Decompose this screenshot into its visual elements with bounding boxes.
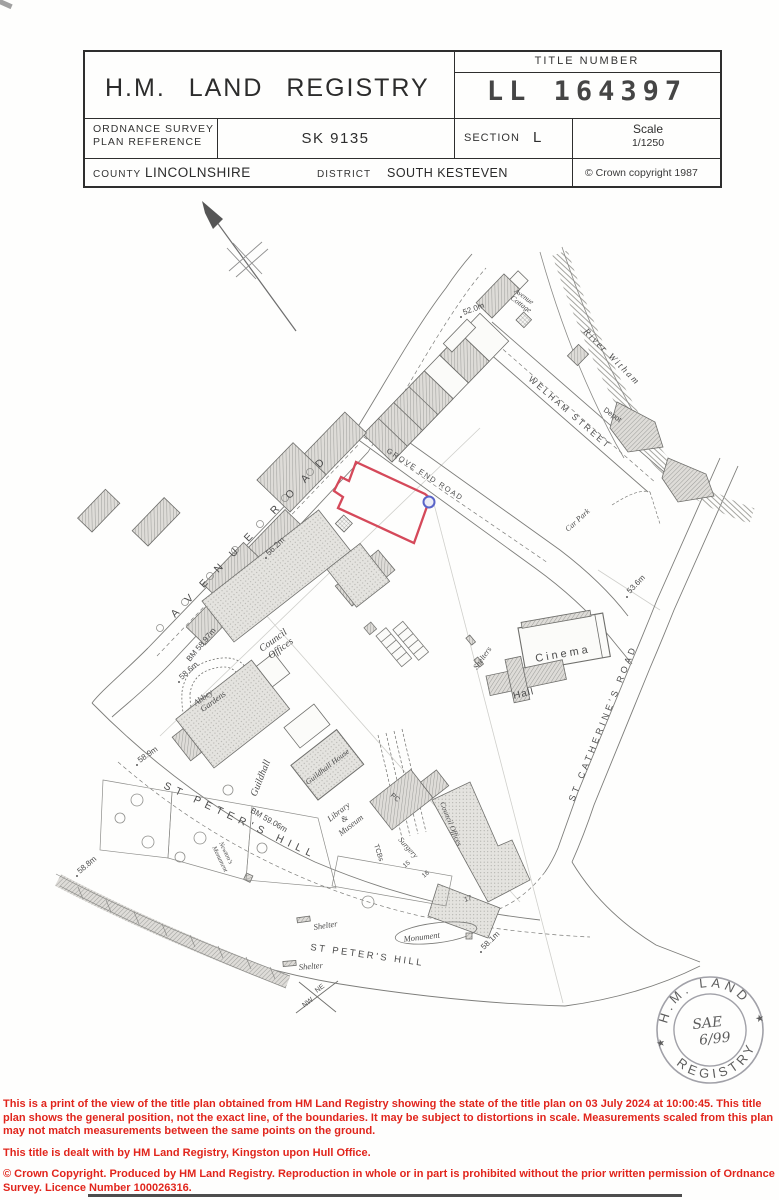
scale-value: 1/1250 xyxy=(572,137,724,149)
stamp-star-left: ★ xyxy=(655,1037,666,1050)
scale-label: Scale xyxy=(572,122,724,136)
tcbs-label: TCBs xyxy=(372,843,384,862)
county-value: LINCOLNSHIRE xyxy=(145,165,251,180)
surgery-label: Surgery xyxy=(397,835,421,860)
street-label-st-peters-hill-upper: ST PETER'S HILL xyxy=(162,780,319,862)
shelter-lower-label: Shelter xyxy=(298,960,324,972)
svg-text:15: 15 xyxy=(402,859,412,869)
header-table: H.M. LAND REGISTRY TITLE NUMBER LL 16439… xyxy=(83,50,722,188)
car-park-label: Car Park xyxy=(563,506,592,533)
stamp-star-right: ★ xyxy=(754,1013,765,1026)
compass-ne-label: NE xyxy=(314,983,326,995)
library-museum-label: Library & Museum xyxy=(324,798,365,838)
scanned-title-plan-page: H.M. LAND REGISTRY TITLE NUMBER LL 16439… xyxy=(0,0,779,1200)
header-divider xyxy=(85,118,720,119)
footer-paragraph-copyright-note: © Crown Copyright. Produced by HM Land R… xyxy=(3,1168,776,1195)
guildhall-label: Guildhall xyxy=(249,758,274,798)
county-label: COUNTY xyxy=(93,169,141,180)
shelters-label: Shelters xyxy=(471,645,493,671)
river-witham xyxy=(540,247,752,516)
registered-parcel-boundary xyxy=(334,462,430,543)
bottom-scan-edge xyxy=(88,1194,682,1197)
district-label: DISTRICT xyxy=(317,169,371,180)
header-divider xyxy=(454,72,720,73)
svg-text:52.0m: 52.0m xyxy=(462,301,486,317)
street-label-st-peters-hill-lower: ST PETER'S HILL xyxy=(310,942,425,969)
council-offices-label: Council Offices xyxy=(257,627,296,664)
registry-title: H.M. LAND REGISTRY xyxy=(105,74,430,103)
footer-paragraph-office-note: This title is dealt with by HM Land Regi… xyxy=(3,1147,776,1161)
footer-notes: This is a print of the view of the title… xyxy=(3,1098,776,1200)
section-label: SECTION xyxy=(464,132,520,144)
svg-text:53.6m: 53.6m xyxy=(625,573,647,595)
title-plan-map: AVENUE ROAD GROVE END ROAD WELHAM STREET… xyxy=(0,195,779,1090)
section-value: L xyxy=(533,129,541,146)
compass-nw-label: NW xyxy=(301,996,315,1009)
stamp-handwriting-line2: 6/99 xyxy=(698,1030,731,1049)
district-value: SOUTH KESTEVEN xyxy=(387,166,508,180)
parcel-number-marker xyxy=(424,497,435,508)
shelter-upper-label: Shelter xyxy=(313,918,339,932)
title-number-value: LL 164397 xyxy=(454,76,720,107)
north-arrow xyxy=(202,201,296,331)
os-plan-reference-value: SK 9135 xyxy=(217,130,454,147)
os-plan-reference-label: ORDNANCE SURVEY PLAN REFERENCE xyxy=(93,123,214,149)
svg-text:58.8m: 58.8m xyxy=(76,854,99,875)
crown-copyright-note: © Crown copyright 1987 xyxy=(585,167,698,179)
scan-corner-mark xyxy=(0,0,13,9)
header-divider xyxy=(85,158,720,159)
map-labels: AVENUE ROAD GROVE END ROAD WELHAM STREET… xyxy=(76,286,648,1009)
monument-label: Monument xyxy=(402,930,441,945)
title-number-label: TITLE NUMBER xyxy=(454,55,720,67)
footer-paragraph-print-note: This is a print of the view of the title… xyxy=(3,1098,776,1139)
newtons-monument-label: Newton's Monument xyxy=(210,840,237,874)
